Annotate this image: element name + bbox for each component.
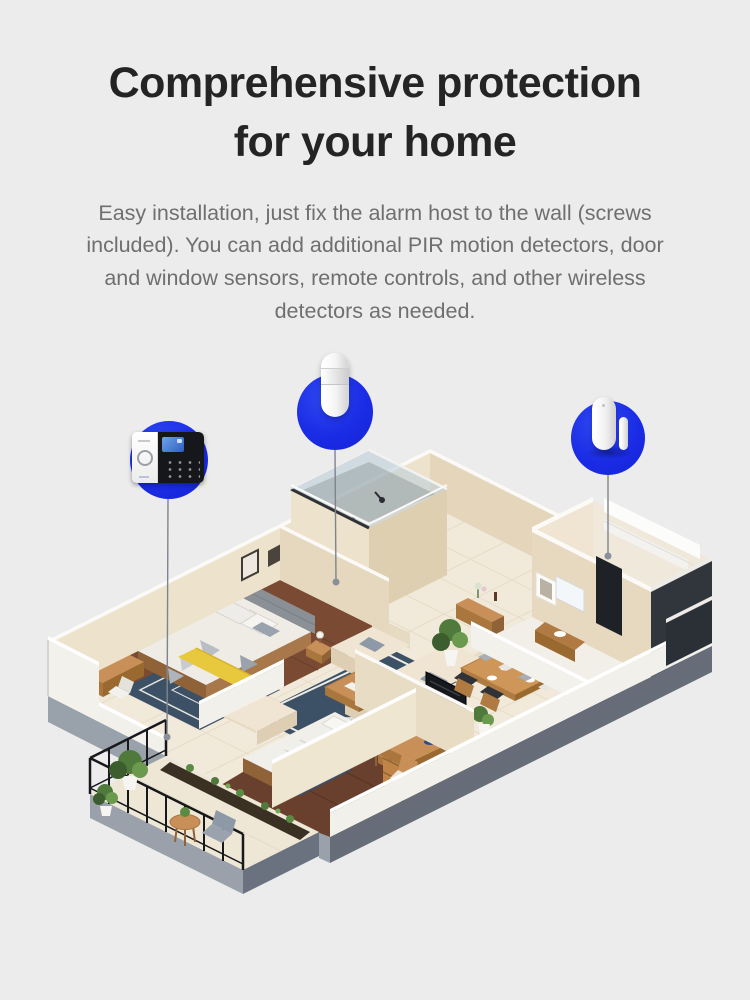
title-line-1: Comprehensive protection (0, 54, 750, 113)
panel-keypad (163, 457, 200, 479)
page-description: Easy installation, just fix the alarm ho… (79, 197, 671, 328)
callout-door-window-sensor (571, 401, 645, 475)
panel-keypad-section (158, 432, 204, 483)
title-line-2: for your home (0, 113, 750, 172)
page-title: Comprehensive protection for your home (0, 54, 750, 173)
pir-motion-detector-icon (321, 353, 349, 417)
callout-alarm-host (130, 421, 208, 499)
product-marketing-page: Comprehensive protection for your home E… (0, 0, 750, 1000)
alarm-host-panel-icon (132, 432, 204, 483)
hero-header: Comprehensive protection for your home E… (0, 54, 750, 327)
door-sensor-magnet-bar (619, 417, 628, 450)
panel-screen (162, 437, 184, 452)
door-window-sensor-icon (592, 397, 616, 450)
callout-pir-motion-detector (297, 374, 373, 450)
panel-speaker-section (132, 432, 158, 483)
panel-speaker-ring (137, 450, 153, 466)
pir-lens-window (321, 368, 349, 385)
